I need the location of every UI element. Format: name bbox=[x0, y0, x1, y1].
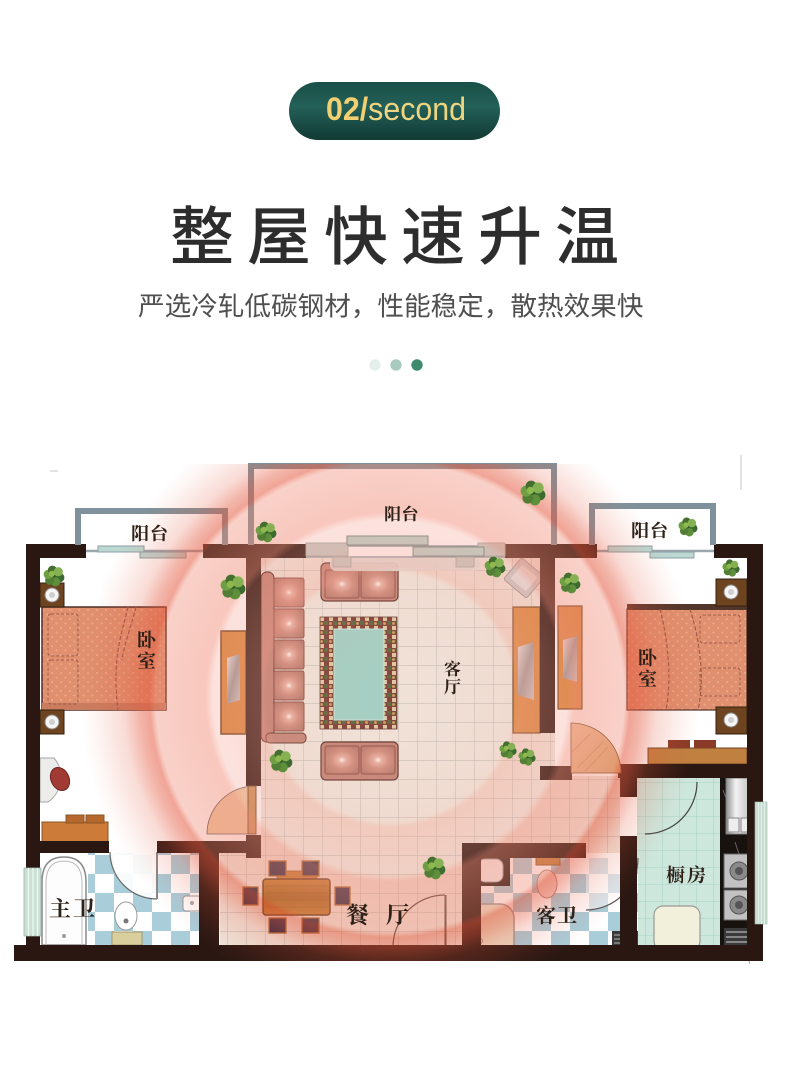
svg-text:02/second: 02/second bbox=[326, 91, 466, 127]
